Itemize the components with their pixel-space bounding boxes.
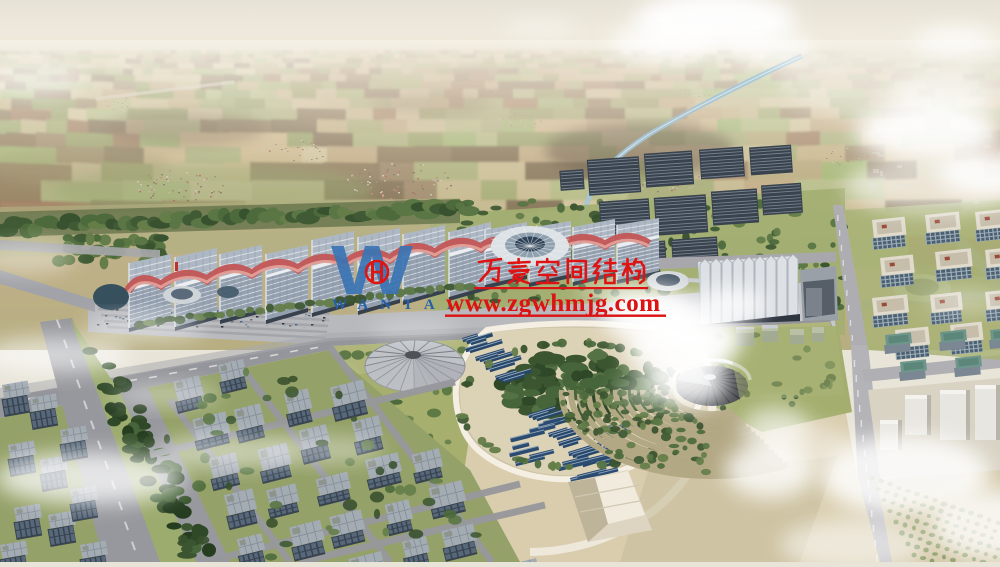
svg-text:www.zgwhmjg.com: www.zgwhmjg.com [446,290,660,317]
svg-text:WANTAI: WANTAI [332,297,465,313]
